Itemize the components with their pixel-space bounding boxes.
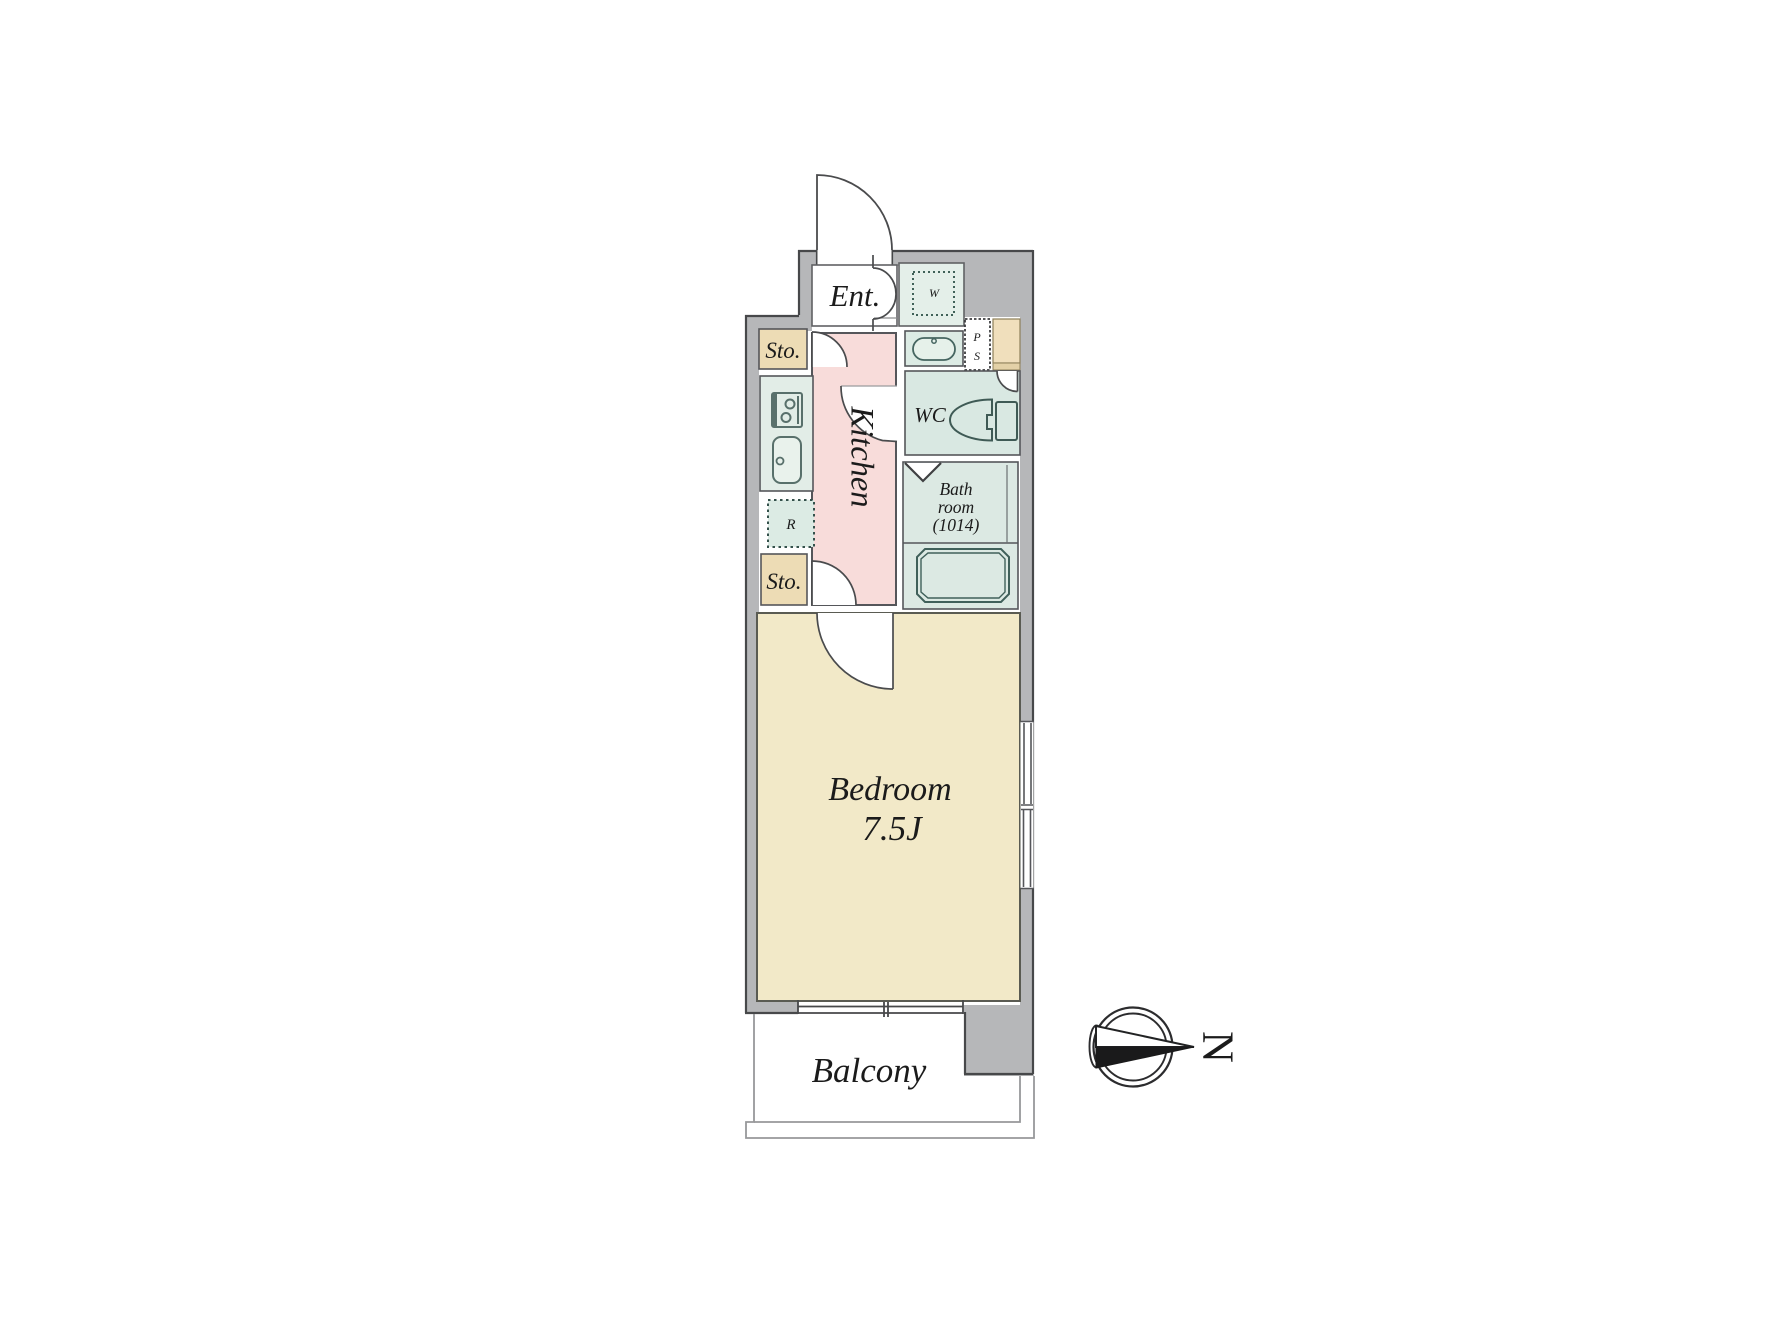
- svg-text:N: N: [1194, 1031, 1243, 1063]
- svg-text:P: P: [972, 330, 981, 344]
- svg-text:W: W: [929, 286, 940, 300]
- svg-text:S: S: [974, 349, 980, 363]
- svg-text:Bedroom: Bedroom: [828, 771, 951, 808]
- svg-text:(1014): (1014): [933, 515, 980, 535]
- svg-text:Bath: Bath: [939, 479, 972, 499]
- svg-text:Balcony: Balcony: [812, 1051, 927, 1090]
- svg-text:Sto.: Sto.: [766, 569, 801, 594]
- svg-text:room: room: [938, 497, 974, 517]
- svg-text:Ent.: Ent.: [829, 278, 881, 313]
- svg-text:WC: WC: [914, 403, 946, 427]
- svg-text:R: R: [785, 517, 795, 533]
- svg-text:7.5J: 7.5J: [862, 809, 923, 848]
- svg-text:Kitchen: Kitchen: [844, 405, 880, 507]
- svg-text:Sto.: Sto.: [765, 338, 800, 363]
